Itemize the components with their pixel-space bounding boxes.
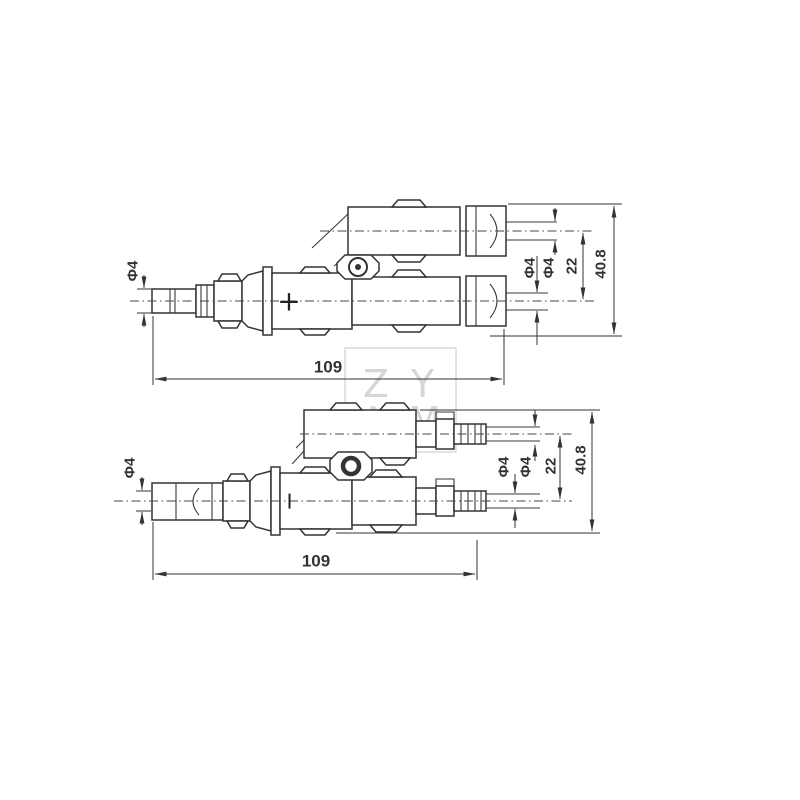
- top-lower-cable-stub: [506, 293, 548, 310]
- bottom-crotch-ring: [343, 458, 359, 474]
- top-dim-label-overall-height: 40.8: [593, 249, 610, 278]
- drawing-page: Z Y A M: [0, 0, 800, 800]
- top-connector-outline: [152, 200, 557, 335]
- diagram-bottom: − Φ4 Φ4 Φ4 22 40.8 109: [114, 403, 600, 580]
- top-dim-label-left-diameter: Φ4: [125, 260, 142, 281]
- top-dim-label-branch-diameter-1: Φ4: [522, 257, 539, 278]
- diagram-top: + Φ4 Φ4 Φ4 22 40.8 109: [125, 200, 623, 385]
- top-crotch-dot: [355, 264, 361, 270]
- bottom-connector-outline: [152, 403, 540, 535]
- bottom-polarity-mark: −: [276, 491, 304, 511]
- bottom-dim-label-branch-spacing: 22: [543, 458, 560, 475]
- bottom-dim-label-branch-diameter-2: Φ4: [518, 456, 535, 477]
- bottom-dim-label-overall-height: 40.8: [573, 445, 590, 474]
- bottom-dim-label-branch-diameter-1: Φ4: [496, 456, 513, 477]
- technical-drawing: Z Y A M: [0, 0, 800, 800]
- top-dim-label-branch-spacing: 22: [564, 258, 581, 275]
- top-dim-label-overall-length: 109: [314, 358, 342, 377]
- top-dim-label-branch-diameter-2: Φ4: [541, 257, 558, 278]
- top-polarity-mark: +: [277, 285, 300, 318]
- bottom-dim-label-overall-length: 109: [302, 552, 330, 571]
- bottom-dim-label-left-diameter: Φ4: [122, 457, 139, 478]
